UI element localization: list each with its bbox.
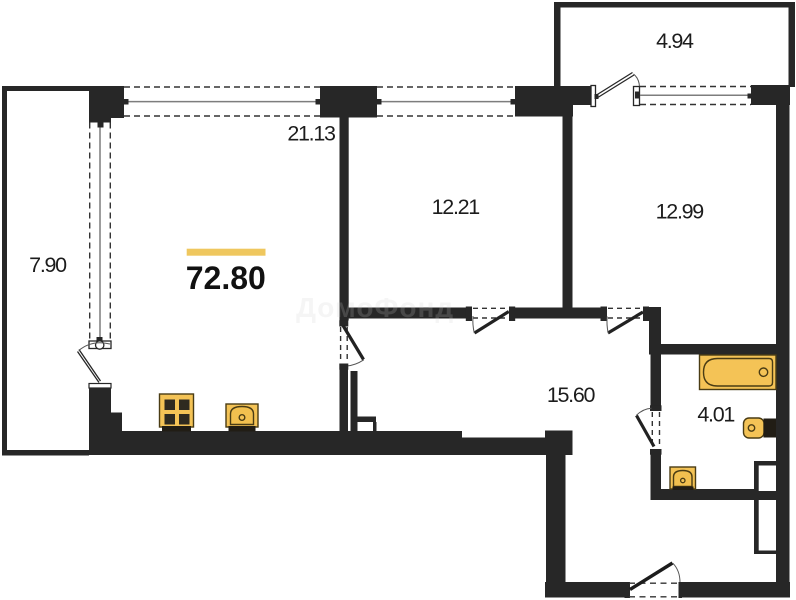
svg-text:ДомоФонд: ДомоФонд: [296, 292, 454, 323]
svg-text:12.21: 12.21: [432, 195, 480, 219]
svg-text:7.90: 7.90: [29, 253, 67, 277]
svg-text:4.01: 4.01: [697, 403, 734, 427]
svg-text:21.13: 21.13: [287, 122, 336, 146]
svg-text:4.94: 4.94: [656, 29, 694, 53]
svg-text:12.99: 12.99: [656, 200, 704, 224]
svg-text:15.60: 15.60: [547, 383, 596, 407]
svg-text:72.80: 72.80: [186, 260, 266, 296]
